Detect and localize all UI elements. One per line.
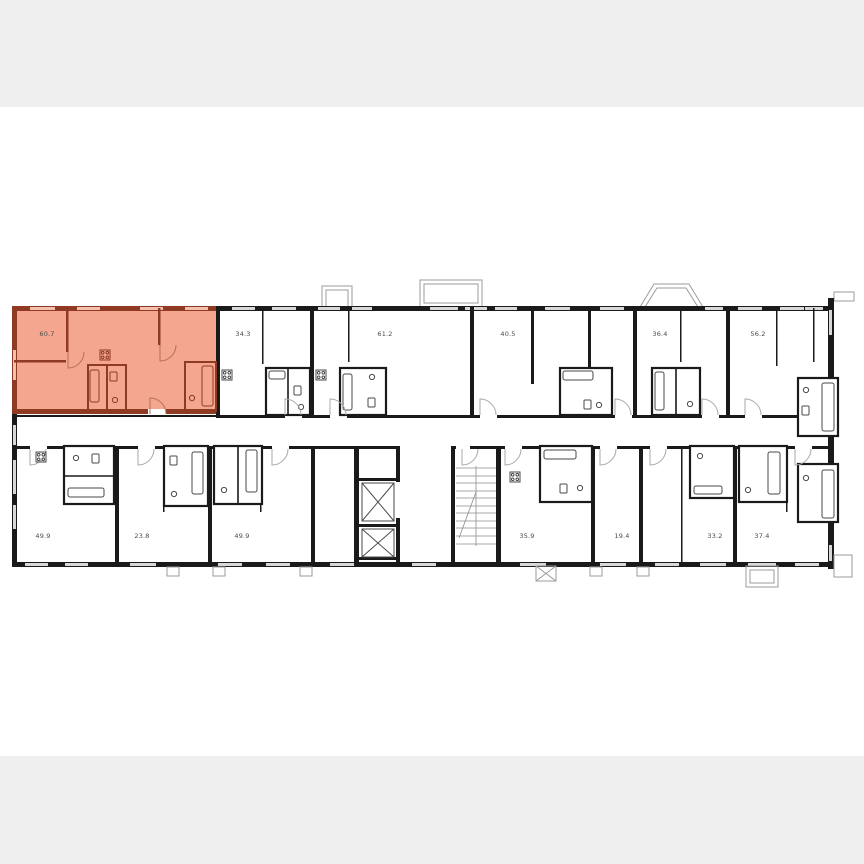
balcony-outlines (167, 555, 852, 587)
elevator-shaft-icon (362, 529, 394, 557)
unit-area-label: 23.8 (134, 532, 149, 540)
screenshot-root: 60.7 34.3 61.2 40.5 36.4 56.2 49.9 23.8 … (0, 0, 864, 864)
staircase-icon (456, 466, 496, 546)
unit-area-label: 60.7 (39, 330, 54, 338)
unit-area-label: 49.9 (234, 532, 249, 540)
unit-area-label: 40.5 (500, 330, 515, 338)
unit-area-label: 61.2 (377, 330, 392, 338)
unit-area-label: 34.3 (235, 330, 250, 338)
stove-icon (510, 472, 520, 482)
elevator-shafts (359, 446, 400, 567)
unit-area-label: 19.4 (614, 532, 629, 540)
elevator-shaft-icon (362, 483, 394, 521)
bay-window-outlines (322, 280, 854, 307)
stove-icon (316, 370, 326, 380)
unit-area-label: 37.4 (754, 532, 769, 540)
floor-plan-drawing (0, 0, 864, 864)
unit-area-label: 36.4 (652, 330, 667, 338)
stove-icon (222, 370, 232, 380)
unit-area-label: 49.9 (35, 532, 50, 540)
corridor-walls (14, 415, 833, 449)
unit-area-label: 35.9 (519, 532, 534, 540)
unit-area-label: 33.2 (707, 532, 722, 540)
unit-area-label: 56.2 (750, 330, 765, 338)
